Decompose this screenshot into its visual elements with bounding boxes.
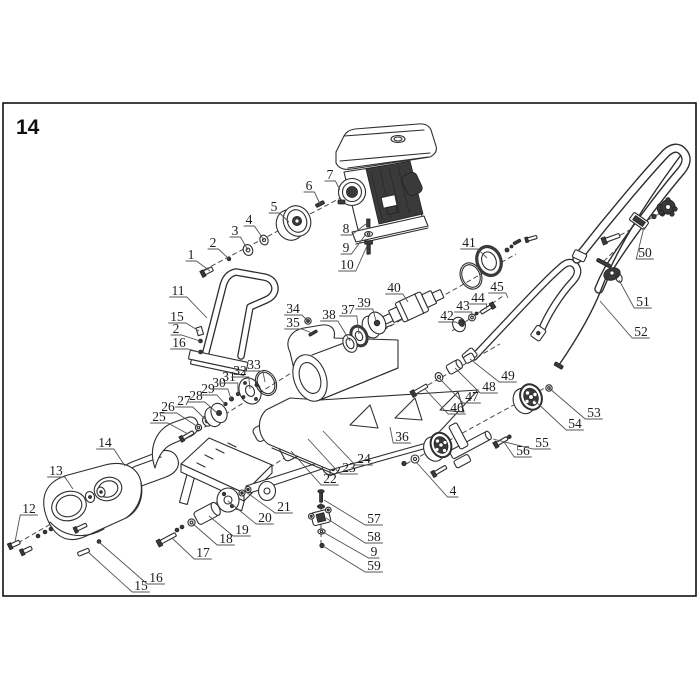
washer-30	[229, 397, 233, 401]
svg-text:44: 44	[471, 290, 485, 305]
svg-text:5: 5	[271, 199, 278, 214]
svg-text:50: 50	[638, 245, 652, 260]
svg-text:19: 19	[235, 522, 249, 537]
svg-text:47: 47	[465, 389, 479, 404]
svg-text:3: 3	[232, 223, 239, 238]
svg-text:7: 7	[327, 167, 334, 182]
bracket-20	[217, 488, 239, 512]
svg-text:1: 1	[188, 247, 195, 262]
nut-59	[320, 543, 324, 547]
figure-number: 14	[16, 116, 40, 139]
parts-diagram-page: 14	[0, 0, 700, 700]
svg-text:59: 59	[367, 558, 381, 573]
svg-text:45: 45	[490, 279, 504, 294]
svg-text:38: 38	[322, 307, 336, 322]
svg-text:48: 48	[482, 379, 496, 394]
svg-text:57: 57	[367, 511, 381, 526]
svg-text:37: 37	[341, 302, 355, 317]
svg-text:17: 17	[196, 545, 210, 560]
svg-text:20: 20	[258, 510, 272, 525]
bolt-57	[320, 492, 323, 502]
svg-text:55: 55	[535, 435, 549, 450]
svg-text:10: 10	[340, 257, 354, 272]
svg-text:43: 43	[456, 298, 470, 313]
svg-text:4: 4	[450, 483, 457, 498]
nut-50b	[652, 214, 656, 218]
svg-text:4: 4	[246, 212, 253, 227]
svg-text:16: 16	[149, 570, 163, 585]
svg-text:35: 35	[286, 315, 300, 330]
svg-text:53: 53	[587, 405, 601, 420]
svg-text:42: 42	[440, 308, 454, 323]
svg-text:34: 34	[286, 301, 300, 316]
svg-text:9: 9	[371, 544, 378, 559]
svg-text:58: 58	[367, 529, 381, 544]
svg-text:26: 26	[161, 399, 175, 414]
svg-text:22: 22	[323, 471, 337, 486]
svg-text:18: 18	[219, 531, 233, 546]
svg-text:6: 6	[306, 178, 313, 193]
svg-text:52: 52	[634, 324, 648, 339]
stud-8	[367, 219, 370, 227]
svg-text:14: 14	[98, 435, 112, 450]
exploded-diagram: 14	[0, 0, 700, 700]
svg-text:36: 36	[395, 429, 409, 444]
svg-text:33: 33	[247, 357, 261, 372]
svg-text:16: 16	[172, 335, 186, 350]
washer-26	[195, 424, 201, 430]
svg-text:2: 2	[210, 235, 217, 250]
svg-text:21: 21	[277, 499, 291, 514]
svg-text:41: 41	[462, 235, 476, 250]
svg-text:24: 24	[357, 451, 371, 466]
svg-text:51: 51	[636, 294, 650, 309]
svg-text:2: 2	[173, 321, 180, 336]
svg-text:9: 9	[343, 240, 350, 255]
svg-text:11: 11	[172, 283, 185, 298]
svg-text:40: 40	[387, 280, 401, 295]
svg-text:56: 56	[516, 443, 530, 458]
svg-text:32: 32	[233, 363, 247, 378]
svg-text:12: 12	[22, 501, 36, 516]
svg-text:15: 15	[134, 578, 148, 593]
svg-text:23: 23	[342, 460, 356, 475]
svg-text:39: 39	[357, 295, 371, 310]
svg-text:8: 8	[343, 221, 350, 236]
washer-9c	[318, 529, 325, 534]
washer-4b	[411, 455, 419, 463]
svg-text:54: 54	[568, 416, 582, 431]
svg-text:13: 13	[49, 463, 63, 478]
svg-text:49: 49	[501, 368, 515, 383]
